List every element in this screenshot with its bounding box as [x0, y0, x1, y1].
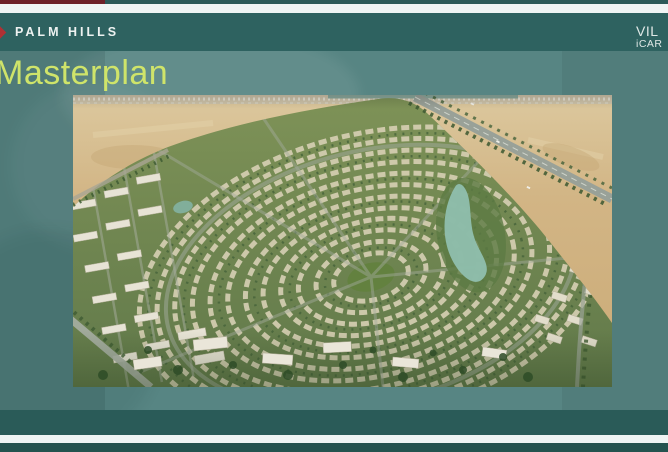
bottom-white-stripe — [0, 435, 668, 443]
brand-logo: PALM HILLS — [0, 22, 119, 42]
brand-label: PALM HILLS — [15, 25, 119, 39]
watermark-line-2: iCAR — [636, 39, 668, 50]
bottom-edge-strip — [0, 443, 668, 452]
slide: { "header": { "brand": "PALM HILLS" }, "… — [0, 0, 668, 452]
watermark: VIL iCAR — [636, 24, 668, 50]
page-title: Masterplan — [0, 54, 168, 93]
masterplan-aerial-image — [73, 95, 612, 387]
watermark-line-1: VIL — [636, 24, 668, 39]
bottom-band — [0, 410, 668, 435]
aerial-render-art — [73, 95, 612, 387]
diamond-icon — [0, 24, 6, 40]
top-white-stripe — [0, 4, 668, 13]
